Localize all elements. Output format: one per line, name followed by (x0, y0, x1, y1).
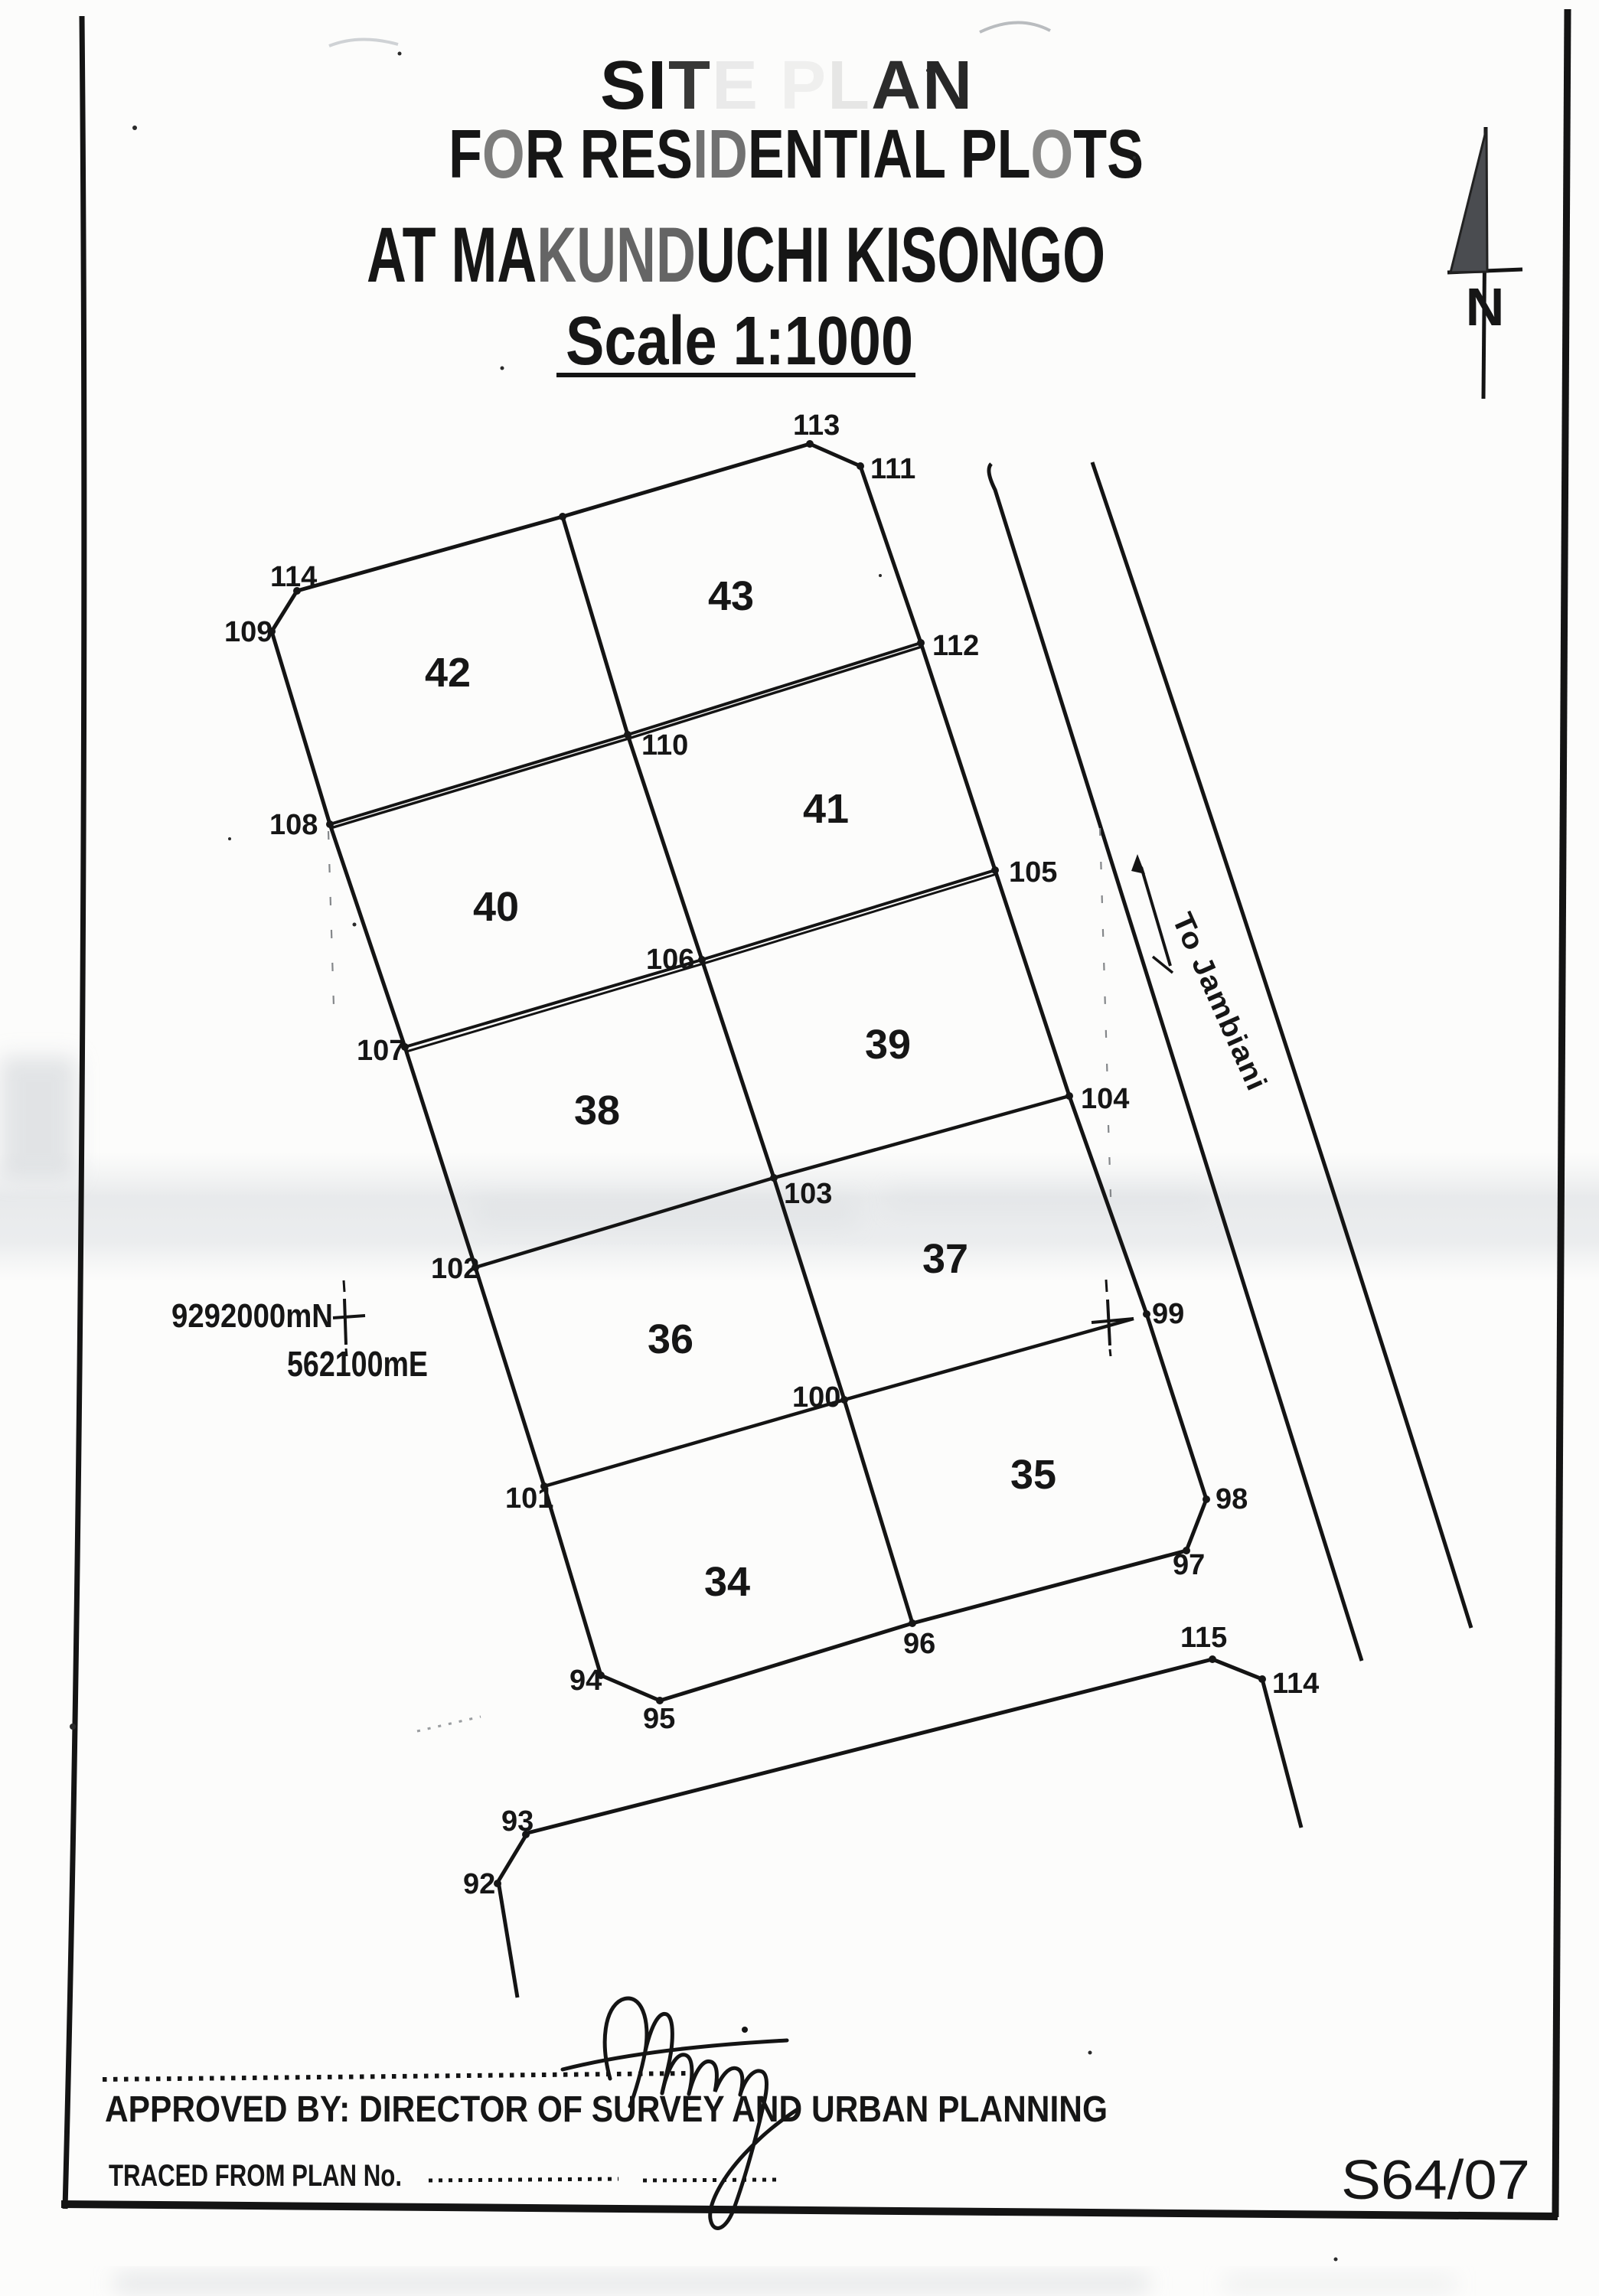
svg-text:114: 114 (1272, 1668, 1319, 1700)
svg-text:9292000mN: 9292000mN (171, 1297, 333, 1335)
svg-text:AT MAKUNDUCHI KISONGO: AT MAKUNDUCHI KISONGO (367, 211, 1105, 298)
svg-text:43: 43 (708, 573, 754, 619)
svg-text:104: 104 (1081, 1083, 1129, 1115)
svg-text:106: 106 (646, 944, 694, 976)
svg-text:92: 92 (463, 1868, 495, 1900)
svg-text:107: 107 (357, 1035, 405, 1067)
svg-text:94: 94 (569, 1665, 602, 1697)
svg-text:35: 35 (1010, 1452, 1056, 1498)
svg-text:102: 102 (431, 1253, 479, 1285)
svg-text:42: 42 (425, 650, 471, 696)
svg-text:SITE PLAN: SITE PLAN (600, 47, 974, 124)
svg-text:S64/07: S64/07 (1341, 2150, 1530, 2211)
svg-text:95: 95 (643, 1703, 675, 1735)
svg-text:N: N (1466, 277, 1505, 337)
svg-text:115: 115 (1180, 1622, 1227, 1654)
svg-text:36: 36 (648, 1316, 693, 1362)
svg-text:114: 114 (270, 561, 317, 593)
svg-text:41: 41 (803, 786, 849, 832)
svg-text:38: 38 (574, 1088, 620, 1133)
svg-text:111: 111 (870, 453, 915, 485)
svg-text:562100mE: 562100mE (287, 1344, 428, 1384)
svg-text:37: 37 (922, 1236, 968, 1282)
svg-text:Scale 1:1000: Scale 1:1000 (566, 303, 913, 380)
svg-text:93: 93 (501, 1805, 534, 1838)
svg-text:FOR RESIDENTIAL PLOTS: FOR RESIDENTIAL PLOTS (449, 116, 1144, 193)
svg-text:34: 34 (704, 1559, 750, 1605)
svg-text:105: 105 (1009, 856, 1057, 889)
svg-text:103: 103 (784, 1178, 832, 1210)
svg-text:110: 110 (641, 729, 688, 762)
svg-text:109: 109 (224, 616, 272, 648)
svg-text:APPROVED BY: DIRECTOR OF SURVE: APPROVED BY: DIRECTOR OF SURVEY AND URBA… (105, 2089, 1108, 2130)
svg-text:100: 100 (792, 1381, 840, 1414)
svg-text:97: 97 (1173, 1549, 1205, 1581)
svg-text:112: 112 (932, 630, 979, 662)
svg-text:TRACED FROM PLAN No.: TRACED FROM PLAN No. (109, 2159, 402, 2193)
svg-text:108: 108 (269, 809, 318, 841)
svg-text:99: 99 (1152, 1298, 1184, 1330)
svg-text:101: 101 (505, 1482, 553, 1515)
svg-text:39: 39 (865, 1022, 911, 1068)
svg-text:96: 96 (903, 1628, 935, 1660)
svg-text:113: 113 (793, 409, 840, 442)
svg-text:98: 98 (1216, 1483, 1248, 1515)
svg-text:40: 40 (473, 884, 519, 930)
